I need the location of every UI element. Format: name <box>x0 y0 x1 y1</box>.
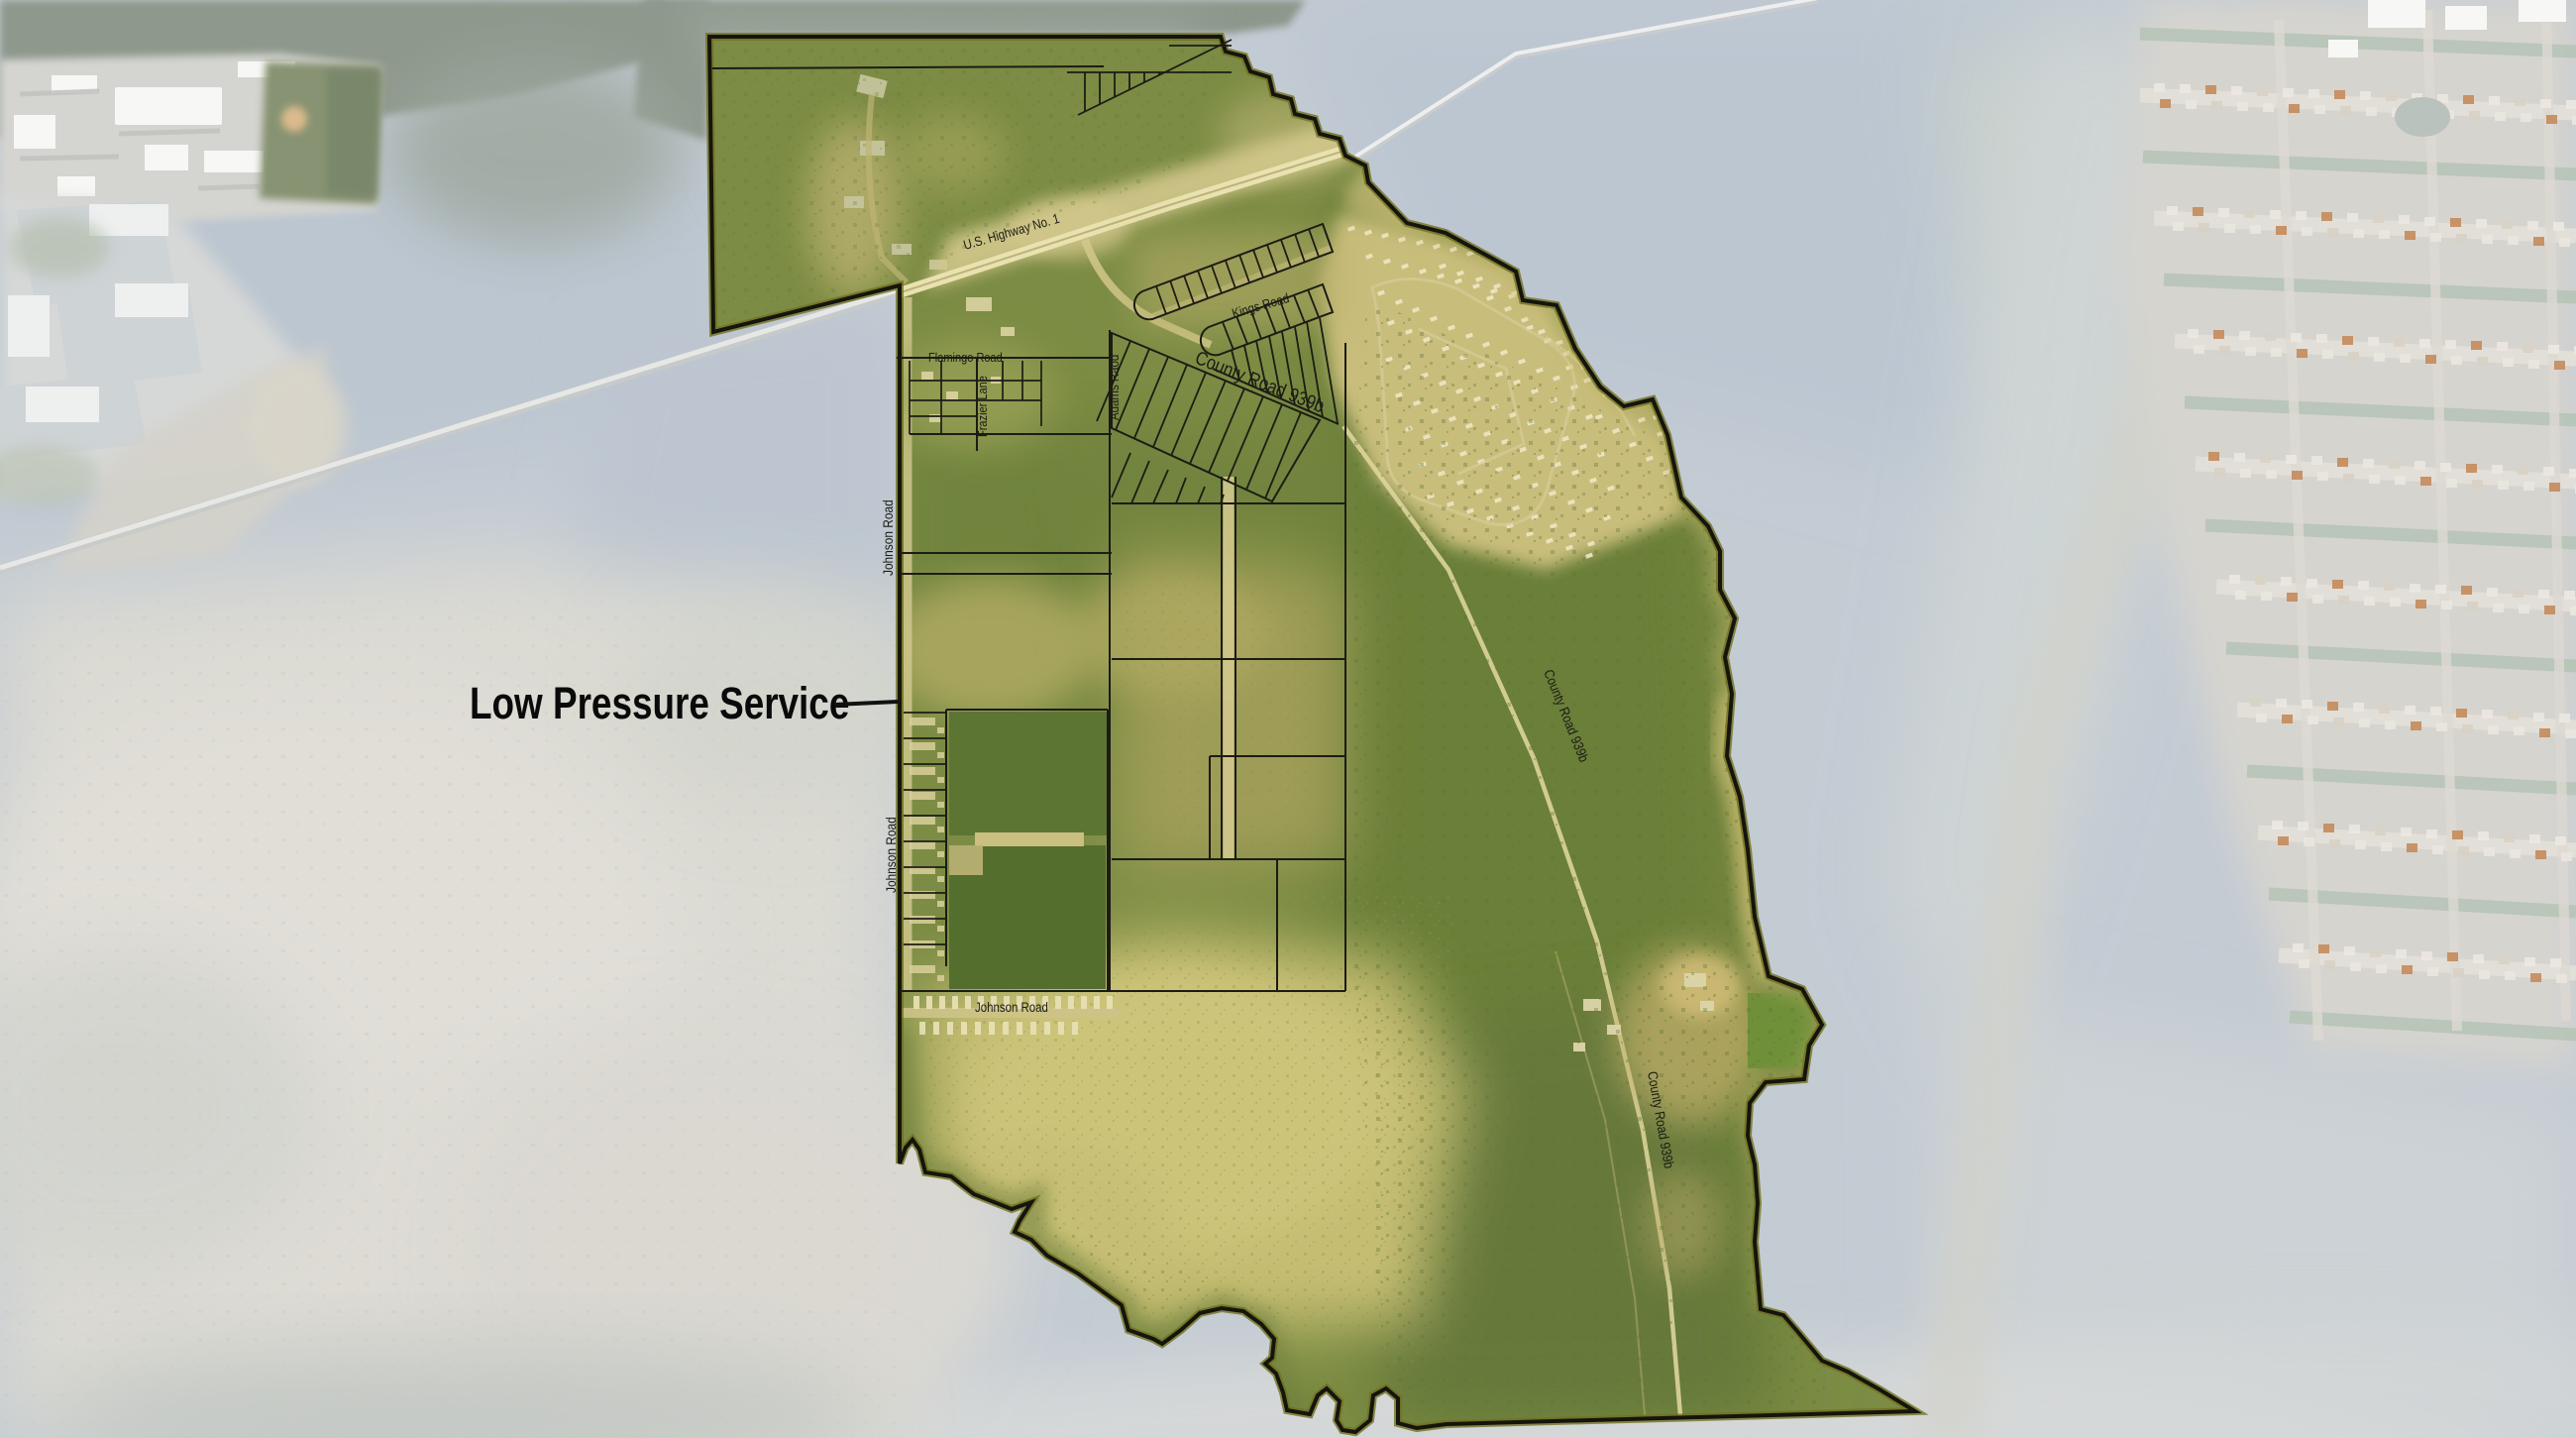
svg-text:Flamingo Road: Flamingo Road <box>928 350 1003 365</box>
svg-text:Frazier Lane: Frazier Lane <box>975 376 990 437</box>
svg-text:Johnson Road: Johnson Road <box>880 499 896 576</box>
svg-text:Low Pressure Service: Low Pressure Service <box>470 679 849 728</box>
svg-text:Johnson Road: Johnson Road <box>975 1000 1048 1015</box>
svg-text:Adams Raod: Adams Raod <box>1107 355 1122 420</box>
svg-text:Johnson Road: Johnson Road <box>883 817 899 893</box>
